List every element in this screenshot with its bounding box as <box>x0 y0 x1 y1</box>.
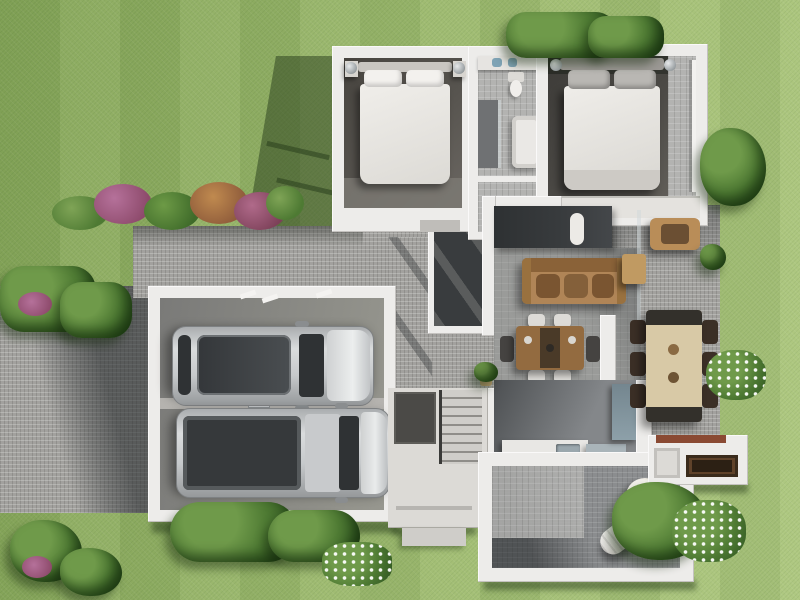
braai <box>648 435 748 485</box>
suv-windshield <box>299 334 324 397</box>
suv-rear-glass <box>178 335 191 395</box>
sofa <box>522 258 626 304</box>
porch-step-edge <box>396 506 472 510</box>
dining-set <box>496 312 606 384</box>
bed1-lamp-left <box>345 62 357 74</box>
entry-porch <box>388 388 488 528</box>
sofa-back <box>522 258 626 272</box>
pickup-mirror-top <box>335 403 348 409</box>
od-table-item-2 <box>668 372 679 383</box>
bush-right-large <box>700 128 766 206</box>
alfresco-light-patch <box>492 466 584 538</box>
od-chair-r1 <box>702 320 718 344</box>
front-walk-slab <box>402 528 466 546</box>
place-setting-3 <box>546 344 554 352</box>
bedroom1-door-opening <box>420 220 460 232</box>
od-chair-l2 <box>630 352 646 376</box>
flower-blob-2 <box>94 184 152 224</box>
bush-driveway-left-2 <box>60 282 132 338</box>
garage <box>148 286 396 522</box>
bed2-pillow-right <box>614 70 656 89</box>
pickup-mirror-bottom <box>335 497 348 503</box>
dining-table <box>516 326 584 370</box>
bed1-duvet <box>360 84 450 184</box>
bed2-lamp-right <box>664 59 676 71</box>
stair-railing <box>439 390 442 464</box>
hedge-top-2 <box>588 16 664 58</box>
bush-bottom-right-2 <box>672 500 746 562</box>
dining-right-wall <box>600 315 616 385</box>
bed1-pillow-left <box>364 70 402 87</box>
shower <box>478 100 498 168</box>
white-flower-bush-1 <box>322 542 392 586</box>
braai-hearth <box>686 455 738 477</box>
floor-plan-scene <box>0 0 800 600</box>
bed2-headboard <box>560 58 664 70</box>
pickup-hood <box>361 412 387 494</box>
place-setting-1 <box>524 336 532 344</box>
bush-bl-pink <box>22 556 52 578</box>
tv-screen <box>570 213 584 245</box>
place-setting-2 <box>568 336 576 344</box>
suv-hood <box>327 330 370 401</box>
patio-pot-plant <box>700 244 726 270</box>
toilet-bowl <box>510 80 522 97</box>
sofa-cushion-3 <box>592 274 614 298</box>
right-edge-plants <box>706 350 766 400</box>
patio-armchair <box>650 218 700 250</box>
staircase <box>442 390 482 464</box>
gutter-mark-3 <box>316 289 333 299</box>
flower-blob-6 <box>266 186 304 220</box>
tv-wall <box>494 206 612 248</box>
pickup-bed <box>183 416 301 490</box>
pickup-cab-roof <box>305 414 341 492</box>
car-suv <box>172 326 374 406</box>
bed2-lamp-left <box>550 59 562 71</box>
sofa-cushion-1 <box>536 274 560 298</box>
suv-roof-glass <box>197 335 291 395</box>
car-pickup <box>176 408 390 498</box>
hall-plant-foliage <box>474 362 498 382</box>
sofa-arm-left <box>522 258 531 304</box>
flower-bed <box>52 178 304 238</box>
od-chair-l1 <box>630 320 646 344</box>
vanity-basin-2 <box>508 58 517 67</box>
od-table-end-bottom <box>646 407 702 422</box>
bed1-pillow-right <box>406 70 444 87</box>
bed2-pillow-left <box>568 70 610 89</box>
suv-mirror-top <box>295 321 309 327</box>
vanity-basin-1 <box>492 58 502 67</box>
bed1 <box>358 62 452 184</box>
sofa-cushion-2 <box>564 274 588 298</box>
entry-doormat <box>394 392 436 444</box>
bedroom-1 <box>332 46 480 232</box>
patio-armchair-seat <box>661 224 689 244</box>
od-table-end-top <box>646 310 702 325</box>
bush-pink-accent <box>18 292 52 316</box>
od-table-item-1 <box>668 344 679 355</box>
bed2-foot-throw <box>564 170 660 190</box>
bush-bottom-left-2 <box>60 548 122 596</box>
patio-side-table <box>622 254 646 284</box>
bed1-lamp-right <box>453 62 465 74</box>
bed2 <box>560 58 664 194</box>
dining-chair-right <box>586 336 600 362</box>
pickup-windshield <box>339 416 359 490</box>
od-table-top <box>646 310 702 422</box>
od-chair-l3 <box>630 384 646 408</box>
braai-hearth-inner <box>692 460 732 472</box>
braai-shelf <box>654 448 680 478</box>
braai-roof-strip <box>656 435 726 443</box>
shower-glass <box>498 100 501 168</box>
dining-chair-left <box>500 336 514 362</box>
balcony-railing <box>692 60 696 192</box>
